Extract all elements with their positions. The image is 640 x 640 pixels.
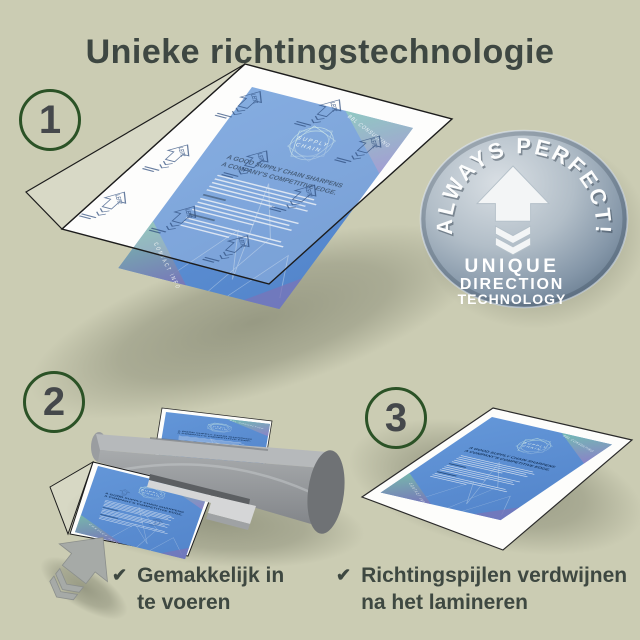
- benefit2-line1: Richtingspijlen verdwijnen: [361, 562, 627, 589]
- checkmark-icon: ✔: [336, 562, 351, 616]
- step-1-number-badge: 1: [19, 89, 81, 151]
- benefit1-line1: Gemakkelijk in: [137, 562, 284, 589]
- page-title: Unieke richtingstechnologie: [0, 33, 640, 72]
- benefit2-line2: na het lamineren: [361, 589, 627, 616]
- badge-label-unique: UNIQUE: [465, 256, 560, 277]
- infographic-canvas: LEITZ BBL CONSULTING SUPPLY CHAIN A GOOD…: [0, 0, 640, 640]
- step-1-number: 1: [39, 98, 61, 143]
- checkmark-icon: ✔: [112, 562, 127, 616]
- benefit-item-arrows-disappear: ✔ Richtingspijlen verdwijnen na het lami…: [336, 562, 627, 616]
- illustration-layer: LEITZ BBL CONSULTING SUPPLY CHAIN A GOOD…: [0, 0, 640, 640]
- benefit1-line2: te voeren: [137, 589, 284, 616]
- benefit-item-easy-feed: ✔ Gemakkelijk in te voeren: [112, 562, 284, 616]
- step-3-number-badge: 3: [365, 387, 427, 449]
- badge-label-technology: TECHNOLOGY: [458, 291, 567, 307]
- always-perfect-badge: ALWAYS PERFECT! ALWAYS PERFECT! UNIQUE D…: [420, 130, 628, 308]
- step-2-number-badge: 2: [23, 371, 85, 433]
- benefit-text-easy-feed: Gemakkelijk in te voeren: [137, 562, 284, 616]
- step-2-number: 2: [43, 380, 65, 425]
- step-3-number: 3: [385, 396, 407, 441]
- benefit-text-arrows-disappear: Richtingspijlen verdwijnen na het lamine…: [361, 562, 627, 616]
